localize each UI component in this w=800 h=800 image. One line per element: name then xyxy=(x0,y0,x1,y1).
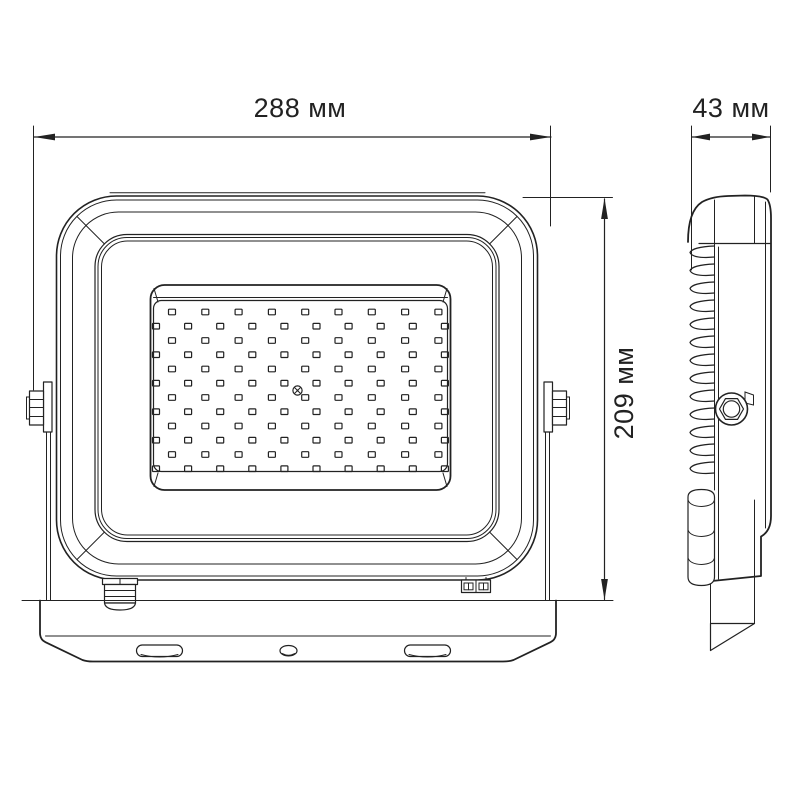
heatsink-fin xyxy=(690,372,715,384)
pivot-knob-right xyxy=(544,382,570,432)
dim-depth-label: 43 мм xyxy=(692,93,769,123)
side-cable-gland xyxy=(688,490,715,586)
heatsink-fin xyxy=(690,246,715,258)
heatsink-fin xyxy=(690,300,715,312)
side-view xyxy=(688,196,771,651)
base-hole-center xyxy=(280,646,297,656)
pivot-bolt-icon xyxy=(716,392,754,425)
heatsink-fin xyxy=(690,462,715,474)
heatsink-fin xyxy=(690,390,715,402)
front-view xyxy=(27,193,570,662)
cable-gland xyxy=(103,579,138,611)
pivot-knob-left xyxy=(27,382,53,432)
heatsink-fin xyxy=(690,408,715,420)
heatsink-fin xyxy=(690,444,715,456)
heatsink-fin xyxy=(690,426,715,438)
bracket-arm-right xyxy=(546,430,550,601)
terminal-clip xyxy=(462,578,491,593)
heatsink-fin xyxy=(690,336,715,348)
dim-height-label: 209 мм xyxy=(609,347,639,440)
heatsink-fin xyxy=(690,354,715,366)
base-slot-left xyxy=(137,645,183,657)
drawing-canvas: 288 мм 43 мм 209 мм xyxy=(0,0,800,800)
heatsink-fin xyxy=(690,264,715,276)
heatsink-fin xyxy=(690,282,715,294)
heatsink-fins xyxy=(690,246,715,474)
floodlight-dimension-drawing: 288 мм 43 мм 209 мм xyxy=(0,0,800,800)
side-bracket xyxy=(711,500,755,651)
heatsink-fin xyxy=(690,318,715,330)
bracket-arm-left xyxy=(47,430,51,601)
dim-width-label: 288 мм xyxy=(254,93,347,123)
base-slot-right xyxy=(405,645,451,657)
